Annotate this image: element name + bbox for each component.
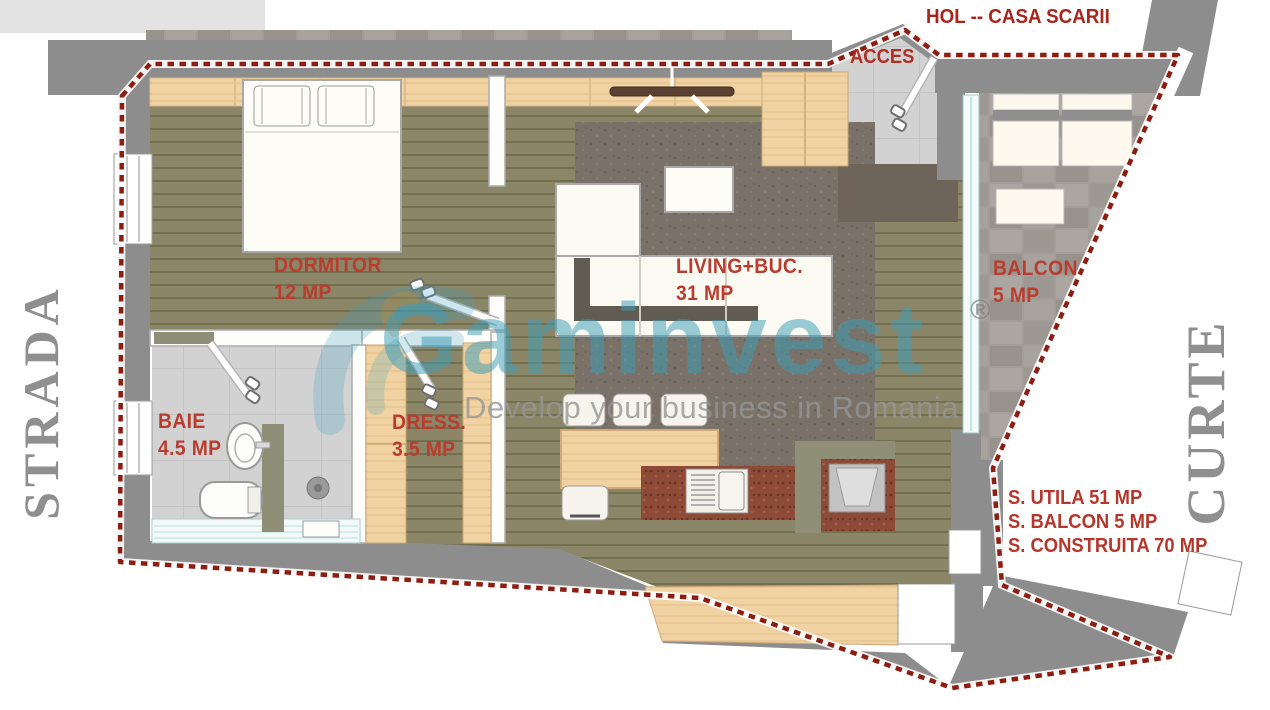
- room-area: 3.5 MP: [392, 436, 466, 463]
- floor-plan: HOL -- CASA SCARII ACCES DORMITOR 12 MP …: [0, 0, 1270, 710]
- tv: [610, 87, 734, 96]
- curte-label: CURTE: [1175, 292, 1235, 552]
- registered-mark: ®: [970, 294, 991, 326]
- window: [1178, 551, 1242, 615]
- lounge-seat: [993, 121, 1059, 166]
- vanity: [262, 424, 284, 532]
- window: [898, 584, 955, 644]
- hol-casa-scarii-label: HOL -- CASA SCARII: [926, 6, 1110, 29]
- room-area: 4.5 MP: [158, 435, 221, 462]
- room-name: BAIE: [158, 410, 206, 433]
- coffee-table: [665, 167, 733, 212]
- room-label-dress: DRESS. 3.5 MP: [392, 409, 466, 463]
- room-name: BALCON: [993, 257, 1078, 280]
- strada-label: STRADA: [12, 252, 68, 552]
- watermark-tagline: Develop your business in Romania: [464, 390, 959, 426]
- window: [949, 530, 981, 574]
- room-name: DORMITOR: [274, 254, 382, 277]
- room-name: DRESS.: [392, 411, 466, 434]
- room-name: LIVING+BUC.: [676, 255, 803, 278]
- balcony-table: [996, 189, 1064, 224]
- room-label-baie: BAIE 4.5 MP: [158, 408, 221, 462]
- room-area: 12 MP: [274, 279, 382, 306]
- room-area: 5 MP: [993, 282, 1078, 309]
- bath-cabinet: [154, 332, 214, 344]
- watermark-brand: Gaminvest: [380, 282, 927, 397]
- lounge-seat: [1062, 121, 1132, 166]
- room-label-dormitor: DORMITOR 12 MP: [274, 252, 382, 306]
- acces-label: ACCES: [850, 46, 914, 69]
- bed: [243, 80, 401, 252]
- room-label-balcon: BALCON 5 MP: [993, 255, 1078, 309]
- sofa-chaise: [556, 184, 640, 262]
